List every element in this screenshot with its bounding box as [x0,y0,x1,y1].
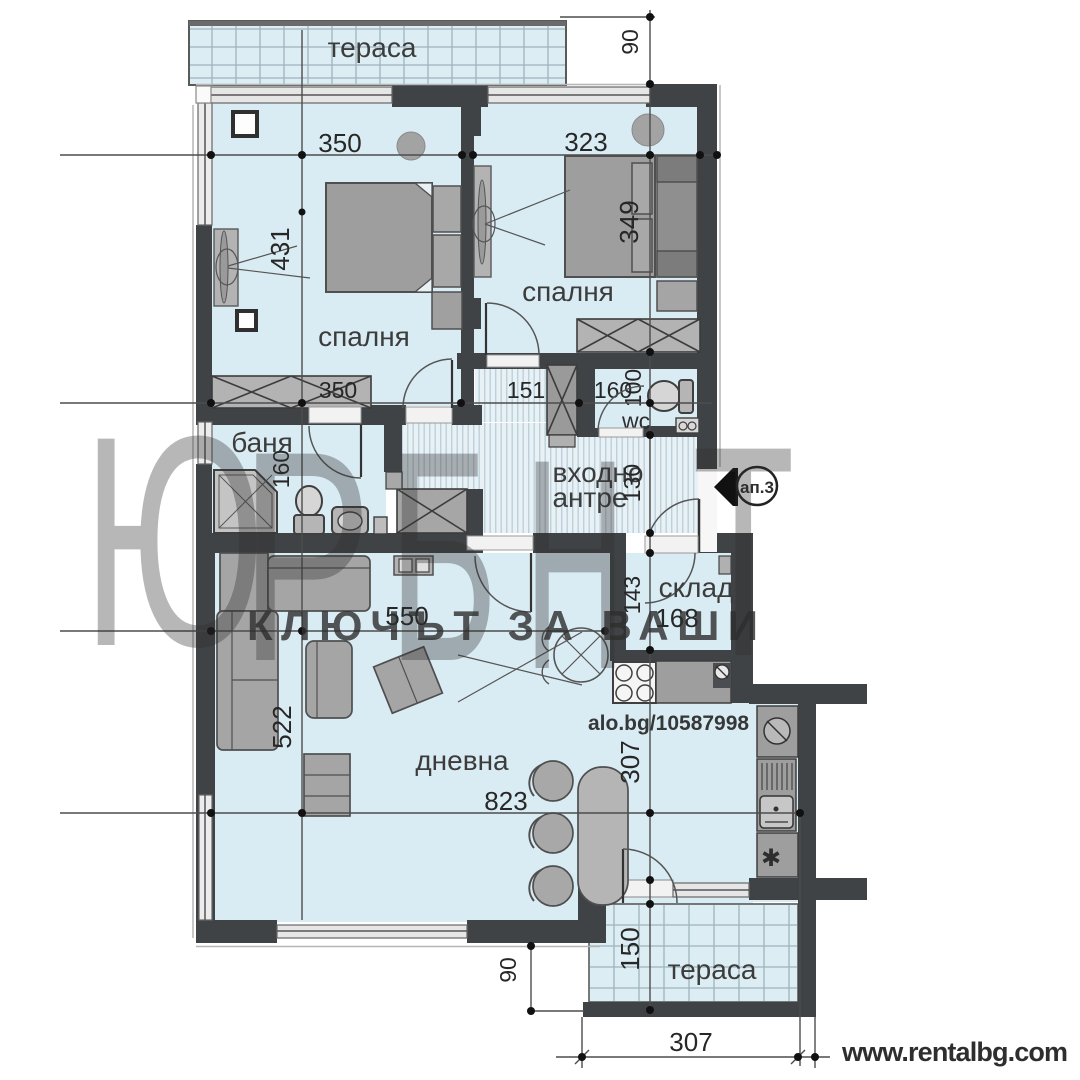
svg-text:Р: Р [240,389,372,724]
svg-text:90: 90 [617,29,643,55]
svg-text:323: 323 [564,127,607,157]
svg-text:431: 431 [265,227,295,270]
svg-text:823: 823 [484,786,527,816]
svg-text:КЛЮЧЪТ ЗА ВАШИ: КЛЮЧЪТ ЗА ВАШИ [247,602,767,649]
svg-text:тераса: тераса [668,954,757,985]
svg-text:тераса: тераса [328,32,417,63]
svg-text:90: 90 [495,957,521,983]
svg-text:Н: Н [524,397,626,732]
svg-text:alo.bg/10587998: alo.bg/10587998 [588,712,749,735]
svg-text:150: 150 [615,927,645,970]
svg-text:спалня: спалня [318,321,410,352]
svg-text:307: 307 [669,1027,712,1057]
svg-text:Т: Т [692,384,795,720]
svg-text:Ю: Ю [83,375,265,710]
svg-text:www.rentalbg.com: www.rentalbg.com [841,1037,1068,1067]
svg-text:✱: ✱ [761,845,781,872]
svg-text:Б: Б [388,389,498,725]
svg-text:350: 350 [318,128,361,158]
svg-text:дневна: дневна [415,745,509,776]
svg-text:спалня: спалня [522,276,614,307]
svg-text:349: 349 [614,200,644,243]
svg-text:307: 307 [615,740,645,783]
